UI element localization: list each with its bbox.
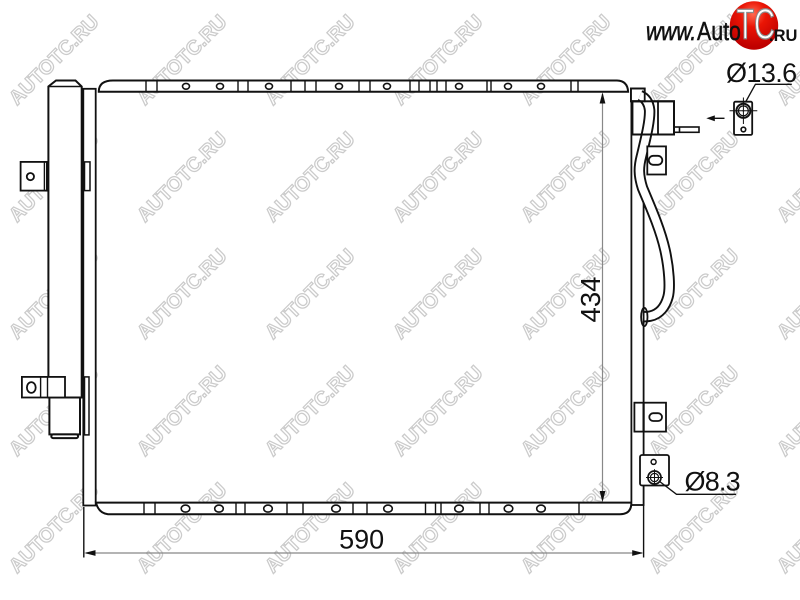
svg-text:590: 590 bbox=[339, 525, 384, 555]
svg-text:www.: www. bbox=[646, 17, 696, 47]
svg-text:Ø8.3: Ø8.3 bbox=[685, 467, 740, 497]
svg-text:434: 434 bbox=[575, 277, 606, 323]
svg-text:.RU: .RU bbox=[769, 27, 797, 45]
svg-text:Auto: Auto bbox=[697, 17, 741, 47]
svg-text:Ø13.6: Ø13.6 bbox=[726, 58, 797, 88]
